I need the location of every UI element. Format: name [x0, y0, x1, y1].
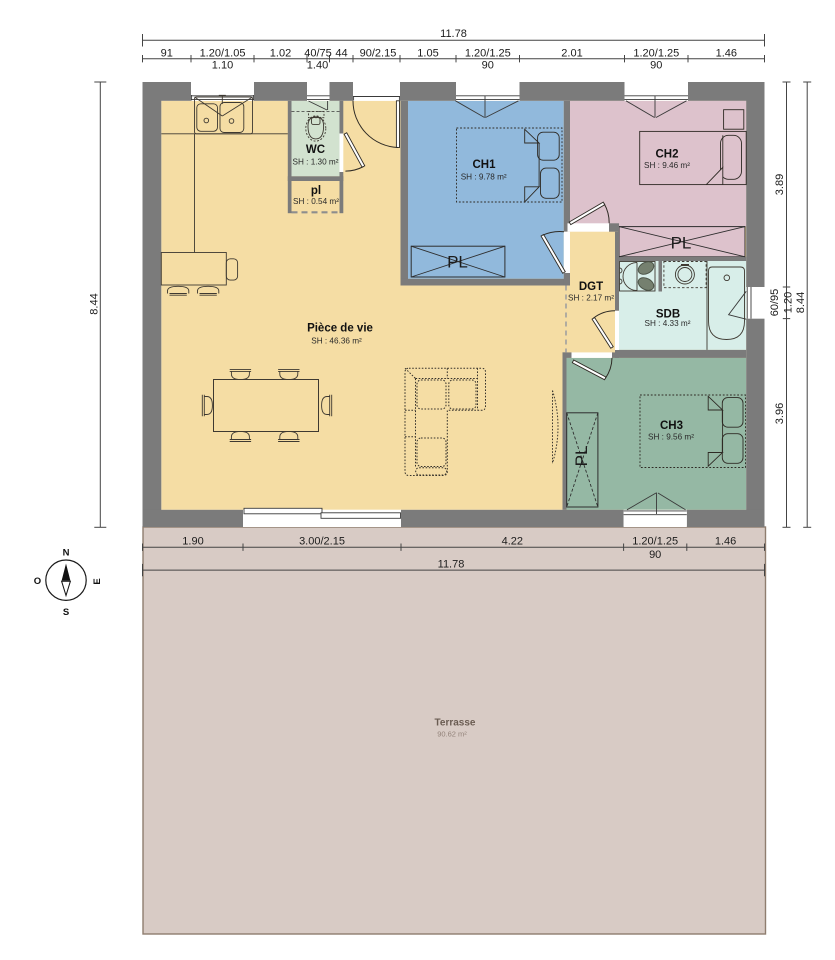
svg-text:90: 90	[650, 59, 662, 71]
svg-text:1.02: 1.02	[270, 48, 291, 60]
svg-text:90/2.15: 90/2.15	[360, 48, 397, 60]
svg-text:1.40: 1.40	[307, 59, 328, 71]
svg-text:SH : 2.17 m²: SH : 2.17 m²	[568, 293, 614, 302]
svg-text:pl: pl	[311, 185, 321, 197]
svg-text:2.01: 2.01	[561, 48, 582, 60]
svg-text:1.20/1.25: 1.20/1.25	[465, 48, 511, 60]
svg-text:SH : 4.33 m²: SH : 4.33 m²	[645, 319, 691, 328]
svg-text:E: E	[92, 578, 103, 584]
svg-text:PL: PL	[572, 446, 591, 467]
svg-text:PL: PL	[671, 233, 692, 252]
svg-text:1.90: 1.90	[182, 536, 203, 548]
svg-text:1.20/1.05: 1.20/1.05	[200, 48, 246, 60]
svg-text:1.20: 1.20	[783, 292, 795, 313]
svg-text:44: 44	[335, 48, 347, 60]
svg-text:3.89: 3.89	[774, 174, 786, 195]
svg-text:1.10: 1.10	[212, 59, 233, 71]
svg-text:4.22: 4.22	[502, 536, 523, 548]
svg-text:Terrasse: Terrasse	[435, 718, 476, 729]
svg-text:1.46: 1.46	[716, 48, 737, 60]
svg-text:SH : 9.46 m²: SH : 9.46 m²	[644, 161, 690, 170]
svg-text:11.78: 11.78	[438, 558, 465, 570]
svg-text:60/95: 60/95	[769, 289, 781, 317]
svg-text:Pièce de vie: Pièce de vie	[307, 323, 373, 335]
svg-text:91: 91	[161, 48, 173, 60]
svg-text:3.96: 3.96	[774, 403, 786, 424]
svg-text:8.44: 8.44	[795, 292, 807, 313]
svg-text:PL: PL	[447, 253, 468, 272]
svg-text:N: N	[63, 548, 70, 559]
svg-text:1.20/1.25: 1.20/1.25	[632, 536, 678, 548]
svg-text:90: 90	[649, 549, 661, 561]
svg-text:11.78: 11.78	[440, 28, 467, 40]
svg-text:3.00/2.15: 3.00/2.15	[299, 536, 345, 548]
svg-text:90: 90	[482, 59, 494, 71]
svg-text:1.46: 1.46	[715, 536, 736, 548]
svg-text:WC: WC	[306, 144, 325, 156]
svg-text:90.62 m²: 90.62 m²	[437, 730, 467, 739]
svg-text:SH : 9.56 m²: SH : 9.56 m²	[648, 433, 694, 442]
svg-text:1.05: 1.05	[417, 48, 438, 60]
svg-text:CH1: CH1	[472, 159, 496, 171]
svg-text:CH2: CH2	[655, 148, 678, 160]
svg-text:O: O	[34, 576, 41, 587]
svg-text:SH : 46.36 m²: SH : 46.36 m²	[311, 337, 362, 346]
svg-text:SH : 0.54 m²: SH : 0.54 m²	[293, 197, 339, 206]
svg-text:1.20/1.25: 1.20/1.25	[633, 48, 679, 60]
svg-text:SH : 9.78 m²: SH : 9.78 m²	[461, 173, 507, 182]
svg-text:CH3: CH3	[660, 420, 683, 432]
svg-text:8.44: 8.44	[88, 293, 100, 314]
svg-text:DGT: DGT	[579, 281, 603, 293]
svg-text:SH : 1.30 m²: SH : 1.30 m²	[293, 158, 339, 167]
svg-text:S: S	[63, 607, 69, 618]
svg-text:40/75: 40/75	[304, 48, 332, 60]
